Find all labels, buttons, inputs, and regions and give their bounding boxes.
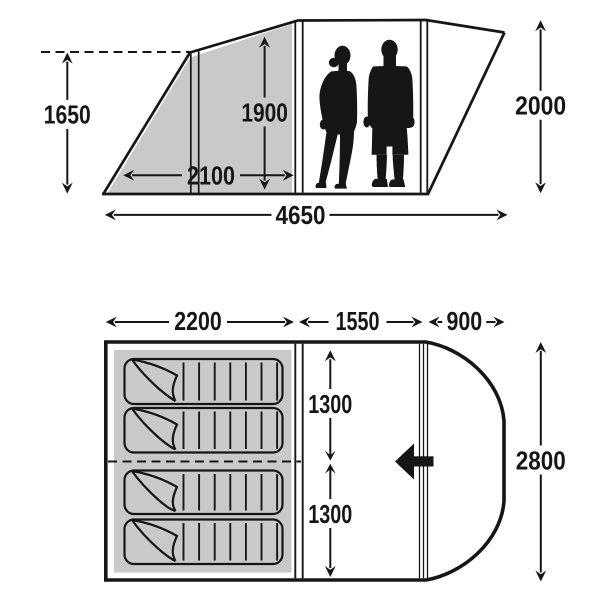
svg-text:4650: 4650 [276,200,326,230]
svg-text:900: 900 [446,306,482,336]
svg-text:2200: 2200 [174,306,222,336]
svg-text:2100: 2100 [187,161,235,191]
svg-text:1300: 1300 [308,389,352,419]
svg-text:1550: 1550 [336,306,380,336]
svg-text:2800: 2800 [516,445,566,475]
svg-text:2000: 2000 [515,91,566,121]
svg-text:1650: 1650 [44,100,91,130]
svg-text:1300: 1300 [308,499,352,529]
svg-text:1900: 1900 [241,97,288,127]
